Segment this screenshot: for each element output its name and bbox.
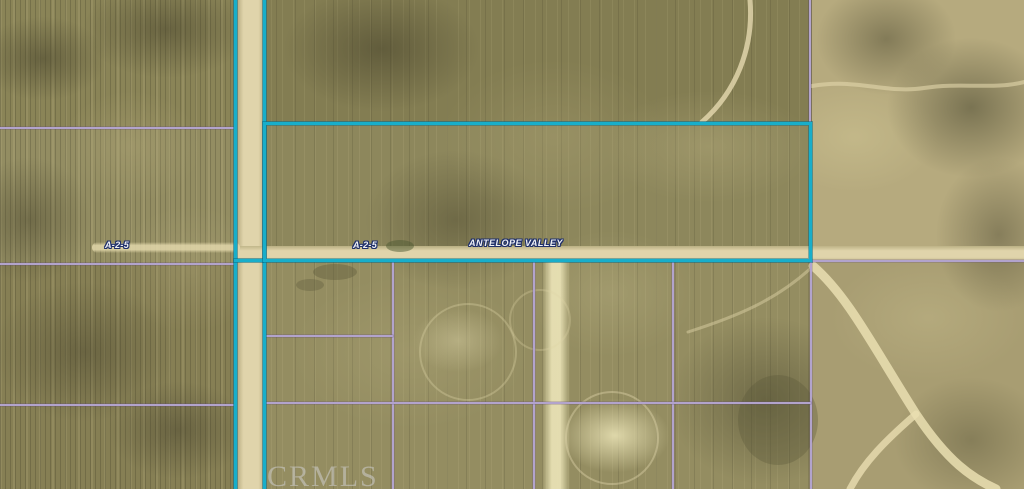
dirt-trail xyxy=(702,0,751,122)
dirt-track-ring xyxy=(420,304,516,400)
parcel-line-east-h xyxy=(812,260,1024,262)
dirt-track-ring xyxy=(566,392,658,484)
brush-patch xyxy=(296,279,324,291)
parcel-line-west-h1 xyxy=(0,127,235,129)
parcel-line-south-v3 xyxy=(533,262,535,489)
dirt-trail xyxy=(688,268,811,332)
dirt-trail xyxy=(850,414,916,489)
aerial-parcel-map: A-2-5 A-2-5 ANTELOPE VALLEY CRMLS xyxy=(0,0,1024,489)
zoning-label-west: A-2-5 xyxy=(105,240,129,250)
parcel-line-west-h3 xyxy=(0,404,235,406)
parcel-line-south-h1 xyxy=(266,335,393,337)
parcel-line-south-h2 xyxy=(266,402,811,404)
parcel-line-south-v2 xyxy=(392,262,394,489)
road-name-label: ANTELOPE VALLEY xyxy=(469,238,563,248)
road-edge-highlight-west xyxy=(234,0,237,489)
parcel-line-south-v1 xyxy=(810,262,812,489)
parcel-outline-road-crossing xyxy=(234,259,263,262)
brush-patch xyxy=(313,264,357,280)
parcel-line-south-v4 xyxy=(672,262,674,489)
dirt-trail xyxy=(812,82,1024,89)
brush-patch xyxy=(738,375,818,465)
parcel-line-north-v xyxy=(809,0,811,122)
zoning-label-central: A-2-5 xyxy=(353,240,377,250)
crmls-watermark: CRMLS xyxy=(267,460,379,489)
parcel-line-west-h2 xyxy=(0,263,235,265)
dirt-trail xyxy=(813,266,996,489)
dirt-track-ring xyxy=(510,290,570,350)
